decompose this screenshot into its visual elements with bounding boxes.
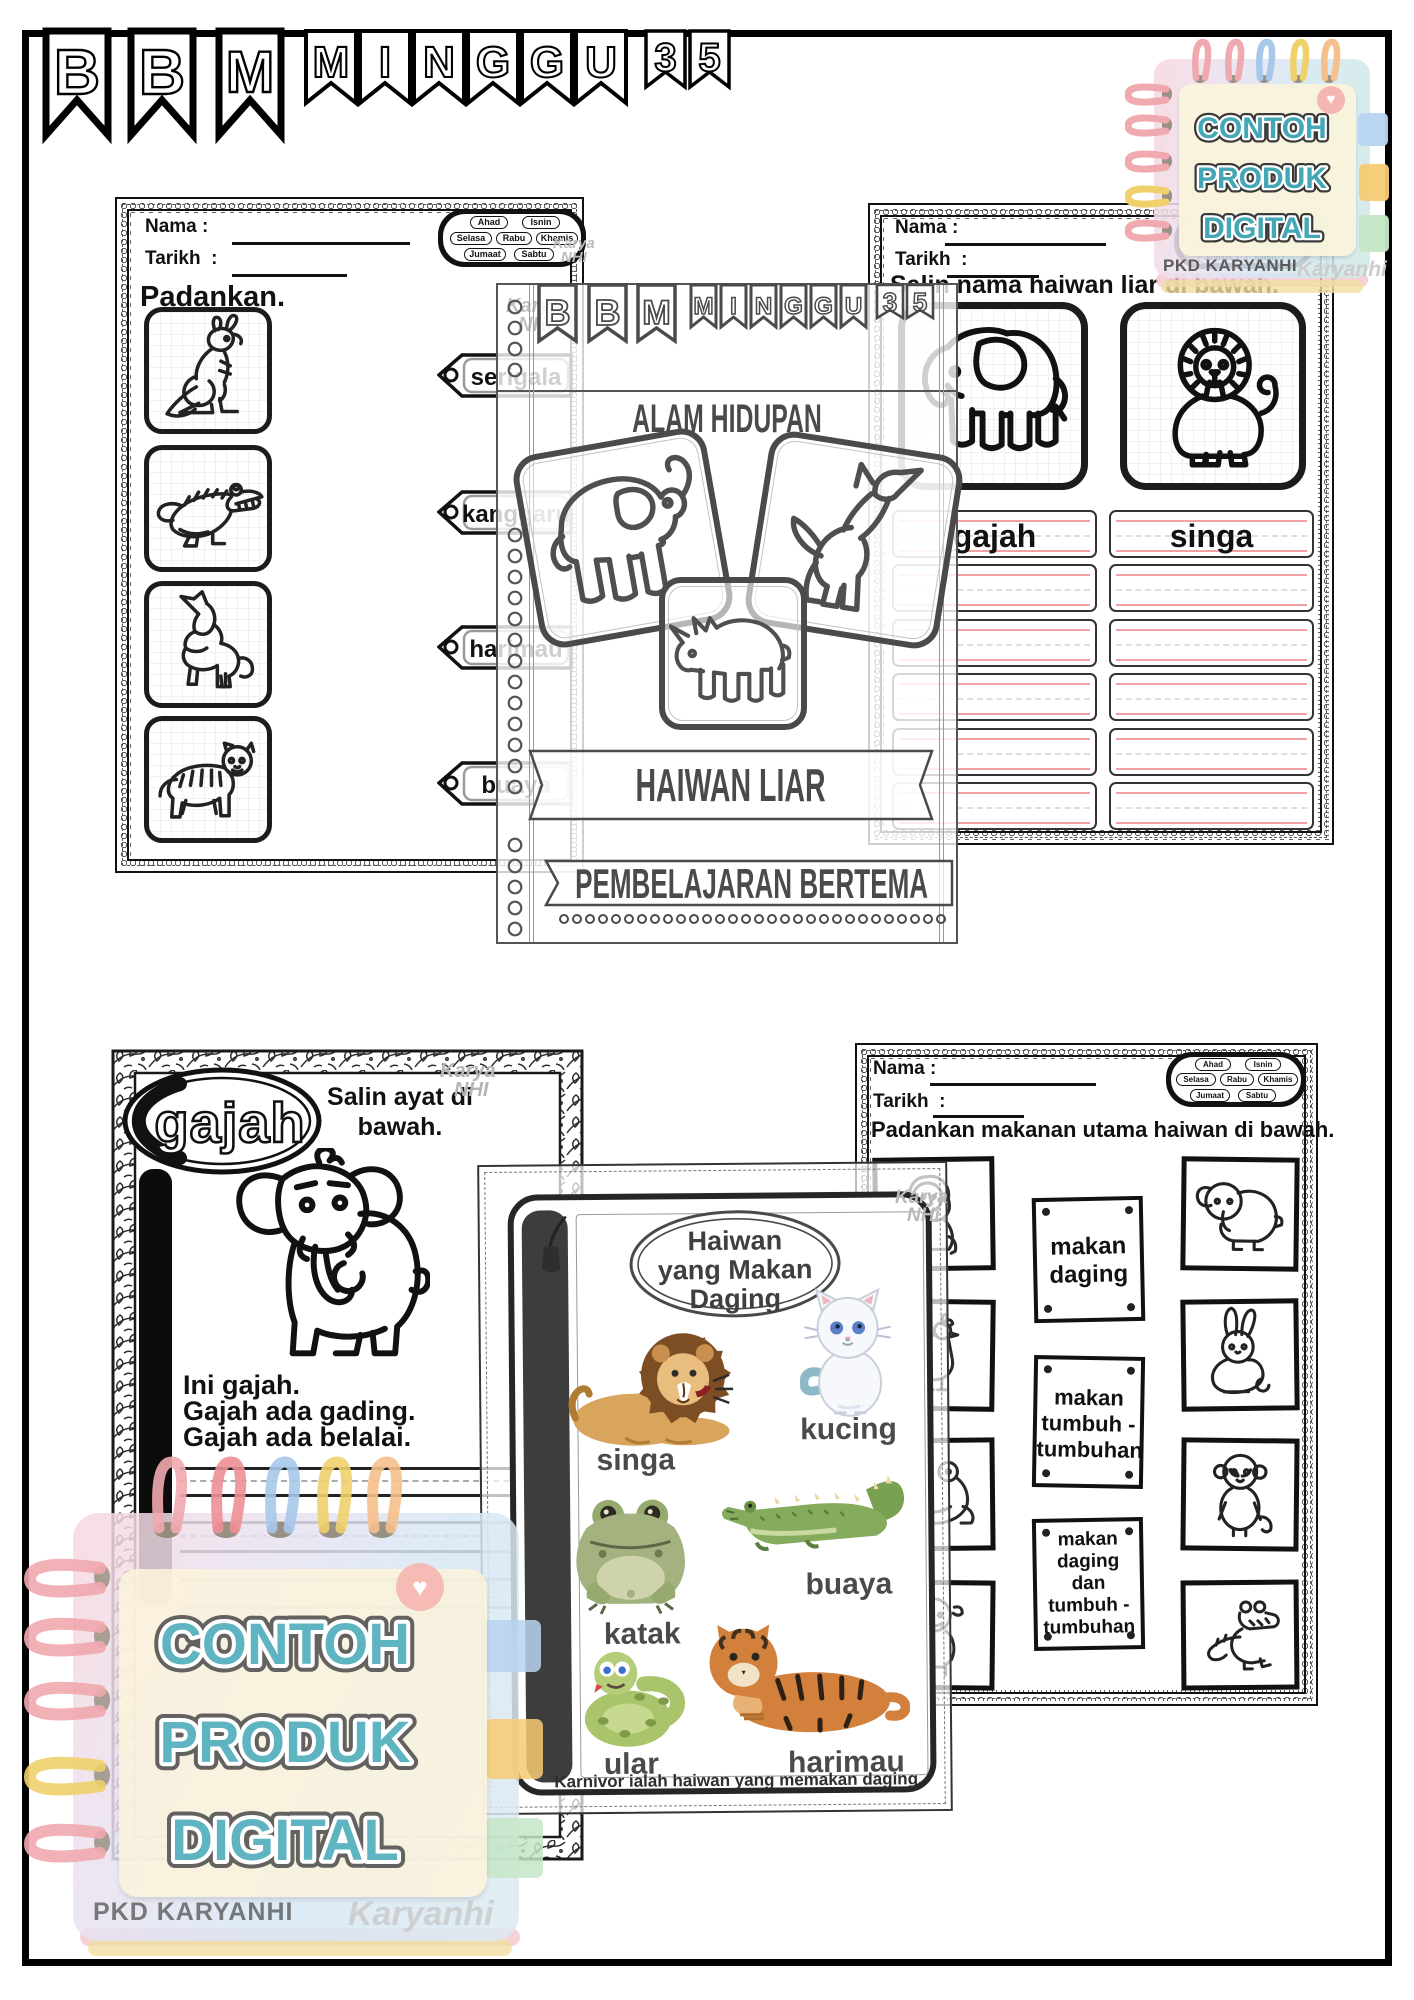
svg-text:CONTOH: CONTOH: [160, 1612, 410, 1677]
svg-text:N: N: [755, 293, 772, 320]
svg-text:G: G: [530, 38, 564, 87]
svg-text:B: B: [595, 292, 621, 333]
svg-text:3: 3: [883, 287, 897, 317]
svg-text:B: B: [139, 36, 185, 108]
svg-text:M: M: [642, 294, 670, 332]
svg-text:B: B: [545, 292, 571, 333]
svg-text:CONTOH: CONTOH: [1197, 112, 1326, 145]
svg-text:M: M: [694, 293, 714, 320]
svg-text:HAIWAN LIAR: HAIWAN LIAR: [635, 760, 825, 812]
svg-text:M: M: [226, 40, 274, 105]
svg-text:I: I: [730, 293, 737, 320]
svg-text:U: U: [585, 38, 617, 87]
svg-text:G: G: [476, 38, 510, 87]
svg-text:G: G: [784, 293, 803, 320]
svg-text:DIGITAL: DIGITAL: [1203, 212, 1321, 245]
svg-text:N: N: [423, 38, 455, 87]
svg-text:PEMBELAJARAN BERTEMA: PEMBELAJARAN BERTEMA: [575, 861, 928, 908]
svg-text:U: U: [845, 293, 862, 320]
svg-text:DIGITAL: DIGITAL: [171, 1808, 399, 1873]
svg-text:3: 3: [654, 36, 676, 80]
svg-text:PRODUK: PRODUK: [159, 1710, 410, 1775]
svg-text:M: M: [313, 38, 350, 87]
svg-text:5: 5: [913, 287, 927, 317]
svg-text:I: I: [379, 38, 391, 87]
svg-text:B: B: [54, 36, 100, 108]
svg-text:gajah: gajah: [154, 1091, 305, 1154]
svg-text:G: G: [814, 293, 833, 320]
svg-text:PRODUK: PRODUK: [1197, 162, 1327, 195]
svg-text:5: 5: [698, 36, 720, 80]
